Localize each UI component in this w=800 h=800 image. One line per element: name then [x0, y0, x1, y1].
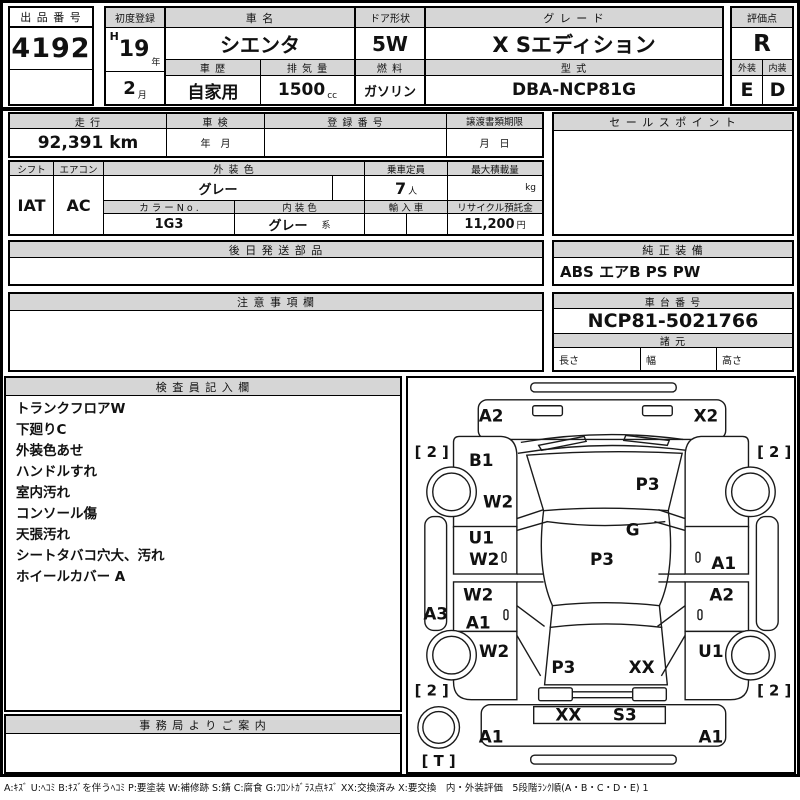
caution-body — [10, 311, 542, 370]
interior-color-suffix: 系 — [322, 218, 331, 234]
recycle-label: リサイクル預託金 — [448, 201, 542, 214]
interior-color-label: 内 装 色 — [234, 201, 364, 214]
sales-point-label: セ ー ル ス ポ イ ン ト — [554, 114, 792, 131]
door-shape-label: ドア形状 — [356, 8, 424, 28]
color-no-label: カ ラ ー N o . — [104, 201, 234, 214]
headlight-right — [643, 406, 673, 416]
displacement-label: 排 気 量 — [260, 60, 354, 76]
color-no-value: 1G3 — [104, 214, 234, 234]
auction-sheet: 出 品 番 号 4192 初度登録 H19年 2月 車 名 シエンタ 車 歴 排… — [0, 0, 800, 800]
transfer-deadline-value: 月 日 — [446, 129, 542, 156]
max-load-label: 最大積載量 — [448, 162, 542, 176]
inspector-note-line: ハンドルすれ — [16, 462, 390, 483]
exterior-color-sub — [332, 176, 364, 200]
width-label: 幅 — [640, 348, 716, 370]
rear-bottom-bar — [531, 755, 676, 764]
left-pillar-lines — [517, 510, 548, 676]
office-notice-label: 事 務 局 よ り ご 案 内 — [6, 716, 400, 734]
capacity-value: 7 — [395, 179, 406, 198]
taillight-bar — [572, 692, 632, 698]
registration-number-label: 登 録 番 号 — [264, 114, 446, 129]
inspector-note-line: 下廻りC — [16, 420, 390, 441]
inspector-label: 検 査 員 記 入 欄 — [6, 378, 400, 396]
score-value: R — [732, 28, 792, 60]
car-name-value: シエンタ — [166, 28, 354, 60]
height-label: 高さ — [716, 348, 788, 370]
first-registration-box: 初度登録 H19年 2月 — [104, 6, 166, 106]
auction-number-value: 4192 — [10, 28, 92, 70]
fuel-value: ガソリン — [356, 76, 424, 104]
displacement-unit: cc — [327, 91, 337, 104]
exterior-color-label: 外 装 色 — [104, 162, 364, 176]
office-notice-body — [6, 734, 400, 772]
mileage-value: 92,391 km — [10, 129, 166, 156]
import-cell-2 — [406, 214, 447, 234]
interior-color-value: グレー — [269, 215, 308, 234]
year-unit: 年 — [151, 55, 160, 71]
capacity-label: 乗車定員 — [365, 162, 447, 176]
front-top-bar — [531, 383, 676, 392]
inspector-note-line: シートタバコ穴大、汚れ — [16, 546, 390, 567]
registration-number-value — [264, 129, 446, 156]
inspector-note-line: コンソール傷 — [16, 504, 390, 525]
car-name-label: 車 名 — [166, 8, 354, 28]
era-mark: H — [110, 28, 119, 43]
damage-code: B1 — [469, 450, 494, 470]
damage-code: W2 — [479, 641, 509, 661]
month-unit: 月 — [138, 88, 147, 104]
inspection-label: 車 検 — [166, 114, 264, 129]
damage-code: XX — [629, 657, 655, 677]
damage-code: X2 — [694, 406, 719, 426]
damage-code-legend: A:ｷｽﾞ U:ﾍｺﾐ B:ｷｽﾞを伴うﾍｺﾐ P:要塗装 W:補修跡 S:錆 … — [4, 780, 796, 794]
chassis-label: 車 台 番 号 — [554, 294, 792, 309]
tire-mark: [ 2 ] — [415, 444, 449, 461]
tire-mark: [ 2 ] — [415, 683, 449, 700]
damage-code: P3 — [551, 657, 575, 677]
tire-mark: [ 2 ] — [757, 444, 791, 461]
history-label: 車 歴 — [166, 60, 260, 76]
spare-tire-mark: [ T ] — [422, 753, 456, 770]
shift-value: IAT — [10, 176, 53, 234]
sales-point-box: セ ー ル ス ポ イ ン ト — [552, 112, 794, 236]
model-code-value: DBA-NCP81G — [426, 76, 722, 104]
history-value: 自家用 — [166, 76, 260, 104]
rear-left-wheel-inner — [433, 636, 471, 674]
damage-code: U1 — [469, 527, 494, 547]
later-parts-body — [10, 258, 542, 284]
recycle-unit: 円 — [517, 218, 526, 234]
front-bumper — [478, 400, 725, 440]
shift-label: シフト — [10, 162, 53, 176]
capacity-unit: 人 — [408, 184, 417, 200]
inspector-notes: トランクフロアW 下廻りC 外装色あせ ハンドルすれ 室内汚れ コンソール傷 天… — [6, 396, 400, 591]
interior-label: 内装 — [762, 60, 792, 76]
auction-number-label: 出 品 番 号 — [10, 8, 92, 28]
front-left-wheel-inner — [433, 473, 471, 511]
mileage-row: 走 行 車 検 登 録 番 号 譲渡書類期限 92,391 km 年 月 月 日 — [8, 112, 544, 158]
later-parts-label: 後 日 発 送 部 品 — [10, 242, 542, 258]
grade-box: グ レ ー ド X Sエディション 型 式 DBA-NCP81G — [424, 6, 724, 106]
inspector-box: 検 査 員 記 入 欄 トランクフロアW 下廻りC 外装色あせ ハンドルすれ 室… — [4, 376, 402, 712]
score-box: 評価点 R 外装 内装 E D — [730, 6, 794, 106]
damage-code: G — [626, 519, 640, 539]
inspector-note-line: 天張汚れ — [16, 525, 390, 546]
grade-label: グ レ ー ド — [426, 8, 722, 28]
damage-code: A1 — [466, 612, 491, 632]
front-right-wheel-inner — [732, 473, 770, 511]
damage-code: A1 — [699, 726, 724, 746]
mileage-label: 走 行 — [10, 114, 166, 129]
taillight-left — [539, 688, 573, 701]
damage-code: P3 — [636, 474, 660, 494]
rear-window-line — [550, 624, 663, 627]
right-rocker-panel — [756, 517, 778, 631]
inspector-note-line: トランクフロアW — [16, 399, 390, 420]
import-cell-1 — [365, 214, 406, 234]
damage-code: S3 — [613, 704, 637, 724]
car-diagram: A2 X2 B1 W2 P3 G P3 U1 W2 W2 A1 A3 A1 A2… — [408, 378, 794, 772]
model-code-label: 型 式 — [426, 60, 722, 76]
first-registration-label: 初度登録 — [106, 8, 164, 28]
registration-year: 19 — [119, 37, 150, 62]
damage-diagram-box: A2 X2 B1 W2 P3 G P3 U1 W2 W2 A1 A3 A1 A2… — [406, 376, 796, 774]
import-label: 輸 入 車 — [365, 201, 447, 214]
damage-code: W2 — [463, 585, 493, 605]
damage-code: W2 — [483, 492, 513, 512]
damage-code: U1 — [698, 641, 723, 661]
inspector-note-line: ホイールカバー A — [16, 567, 390, 588]
fuel-label: 燃 料 — [356, 60, 424, 76]
interior-grade: D — [762, 76, 792, 104]
aircon-label: エアコン — [54, 162, 103, 176]
door-shape-box: ドア形状 5W 燃 料 ガソリン — [354, 6, 426, 106]
damage-code: XX — [555, 704, 581, 724]
door-shape-value: 5W — [356, 28, 424, 60]
section-divider — [0, 107, 800, 111]
transfer-deadline-label: 譲渡書類期限 — [446, 114, 542, 129]
rear-right-wheel-inner — [732, 636, 770, 674]
damage-code: W2 — [469, 549, 499, 569]
length-label: 長さ — [554, 348, 640, 370]
inspector-note-line: 外装色あせ — [16, 441, 390, 462]
later-parts-box: 後 日 発 送 部 品 — [8, 240, 544, 286]
damage-code: A2 — [709, 585, 734, 605]
tire-mark: [ 2 ] — [757, 683, 791, 700]
inspector-note-line: 室内汚れ — [16, 483, 390, 504]
sales-point-body — [554, 131, 792, 234]
chassis-box: 車 台 番 号 NCP81-5021766 諸 元 長さ 幅 高さ — [552, 292, 794, 372]
roof-left-edge — [541, 511, 552, 606]
damage-code: A1 — [711, 553, 736, 573]
damage-code: A3 — [423, 604, 448, 624]
displacement-value: 1500 — [278, 80, 325, 100]
color-spec-block: シフト IAT エアコン AC 外 装 色 グレー カ ラ ー N o . 内 … — [8, 160, 544, 236]
exterior-grade: E — [732, 76, 762, 104]
exterior-color-value: グレー — [104, 176, 332, 200]
exterior-label: 外装 — [732, 60, 762, 76]
equipment-label: 純 正 装 備 — [554, 242, 792, 258]
aircon-value: AC — [54, 176, 103, 234]
registration-month: 2 — [123, 78, 136, 99]
auction-number-box: 出 品 番 号 4192 — [8, 6, 94, 106]
auction-number-empty — [10, 70, 92, 102]
cowl-line — [547, 522, 666, 526]
car-name-box: 車 名 シエンタ 車 歴 排 気 量 自家用 1500cc — [164, 6, 356, 106]
damage-code: P3 — [590, 549, 614, 569]
inspection-value: 年 月 — [166, 129, 264, 156]
caution-label: 注 意 事 項 欄 — [10, 294, 542, 311]
damage-code: A2 — [479, 406, 504, 426]
hood-edge — [521, 435, 683, 443]
caution-box: 注 意 事 項 欄 — [8, 292, 544, 372]
headlight-left — [533, 406, 563, 416]
office-notice-box: 事 務 局 よ り ご 案 内 — [4, 714, 402, 774]
score-label: 評価点 — [732, 8, 792, 28]
grade-value: X Sエディション — [426, 28, 722, 60]
equipment-box: 純 正 装 備 ABS エアB PS PW — [552, 240, 794, 286]
dimensions-label: 諸 元 — [554, 334, 792, 348]
taillight-right — [633, 688, 667, 701]
damage-code: A1 — [479, 726, 504, 746]
chassis-value: NCP81-5021766 — [554, 309, 792, 334]
max-load-unit: kg — [448, 176, 542, 201]
equipment-value: ABS エアB PS PW — [554, 258, 792, 284]
spare-tire-inner — [423, 712, 455, 744]
recycle-value: 11,200 — [464, 217, 514, 232]
hatch-panel — [534, 707, 666, 724]
